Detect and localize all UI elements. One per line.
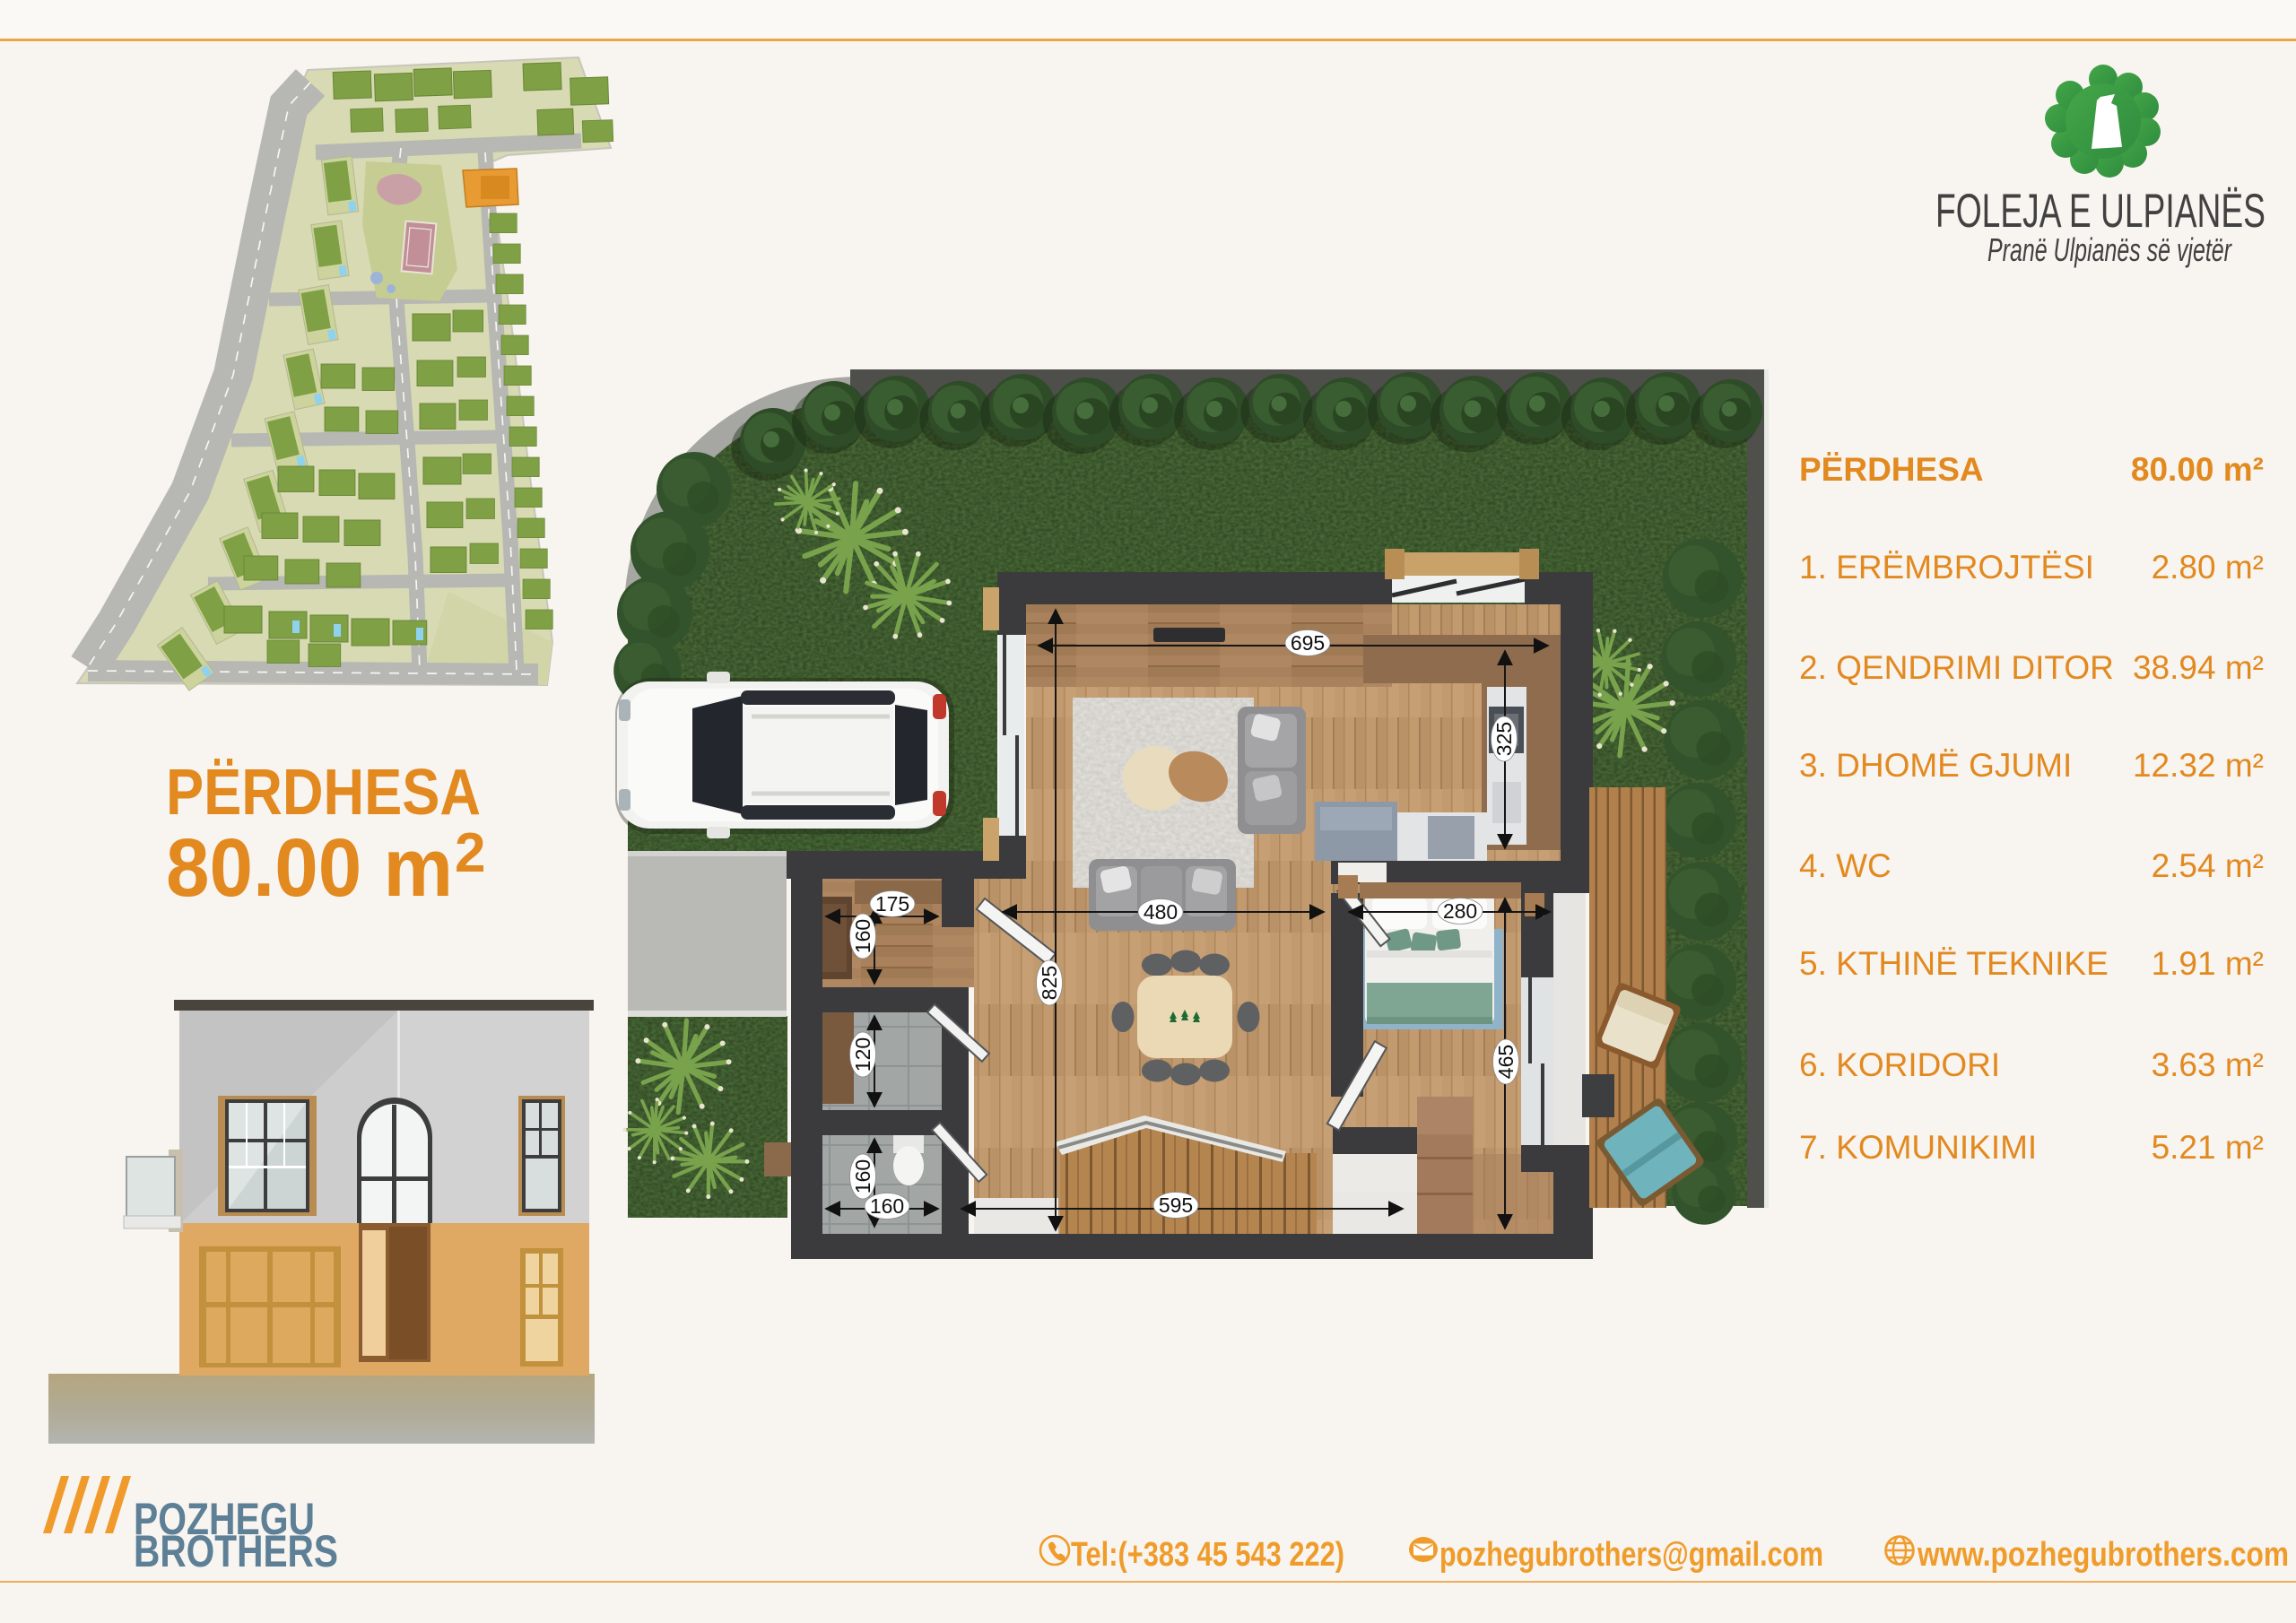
svg-text:465: 465 <box>1494 1045 1518 1079</box>
svg-text:www.pozhegubrothers.com: www.pozhegubrothers.com <box>1918 1536 2289 1574</box>
svg-text:80.00 m: 80.00 m <box>166 822 453 910</box>
svg-text:FOLEJA E ULPIANËS: FOLEJA E ULPIANËS <box>1935 185 2266 233</box>
svg-text:695: 695 <box>1291 631 1325 655</box>
svg-text:2: 2 <box>455 822 485 884</box>
svg-text:Tel:(+383 45 543 222): Tel:(+383 45 543 222) <box>1071 1536 1344 1574</box>
svg-text:160: 160 <box>870 1194 904 1218</box>
svg-text:160: 160 <box>851 1159 874 1193</box>
svg-text:175: 175 <box>875 892 909 916</box>
svg-text:825: 825 <box>1038 966 1061 1000</box>
svg-text:120: 120 <box>851 1037 874 1072</box>
svg-text:480: 480 <box>1144 900 1178 924</box>
svg-text:Pranë Ulpianës së vjetër: Pranë Ulpianës së vjetër <box>1987 233 2232 268</box>
svg-text:595: 595 <box>1159 1193 1193 1217</box>
svg-text:160: 160 <box>851 919 874 953</box>
svg-text:325: 325 <box>1492 722 1516 756</box>
svg-text:pozhegubrothers@gmail.com: pozhegubrothers@gmail.com <box>1439 1536 1823 1574</box>
svg-text:280: 280 <box>1443 899 1477 923</box>
